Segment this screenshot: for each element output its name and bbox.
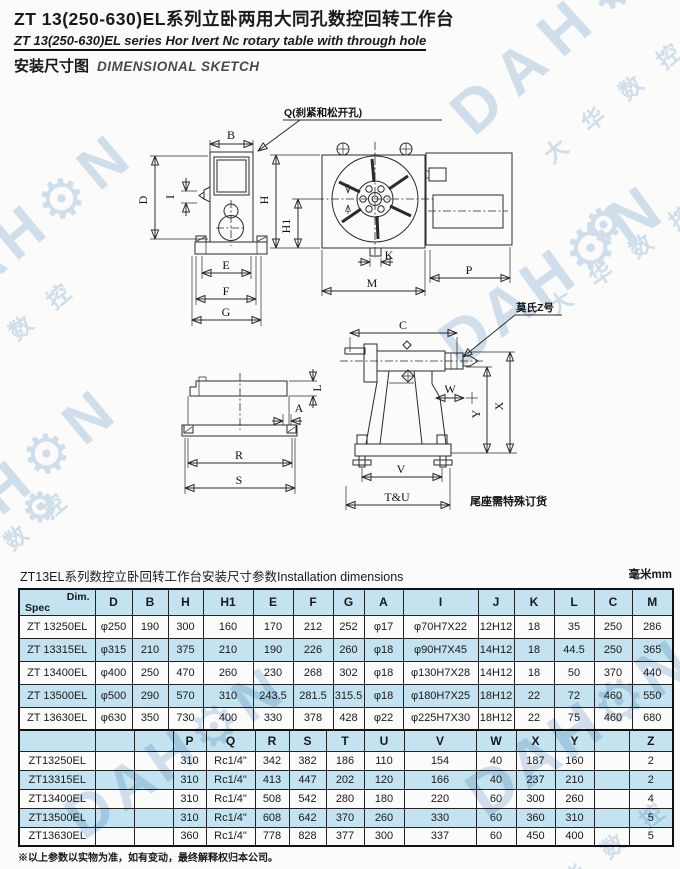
table-header-cell: X [516, 730, 555, 751]
footnote: ※以上参数以实物为准，如有变动，最终解释权归本公司。 [18, 849, 278, 864]
table-cell: 154 [404, 751, 476, 770]
table-cell: 226 [293, 638, 333, 661]
spec-cell: ZT13400EL [19, 789, 95, 808]
spec-cell: ZT 13500EL [19, 684, 95, 707]
table-cell [594, 751, 629, 770]
dim-label-tu: T&U [384, 490, 410, 504]
table-cell [594, 789, 629, 808]
table-cell: 428 [333, 707, 364, 730]
table-cell: Rc1/4" [206, 770, 255, 789]
table-cell: 350 [132, 707, 168, 730]
page-title-zh: ZT 13(250-630)EL系列立卧两用大同孔数控回转工作台 [14, 6, 454, 31]
table-cell: 186 [326, 751, 364, 770]
table-cell: 365 [632, 638, 673, 661]
table-cell: 370 [594, 661, 632, 684]
drawing-base-section: L A R S [182, 369, 324, 494]
table-cell: φ500 [95, 684, 132, 707]
table-cell: 608 [255, 808, 289, 827]
table-cell: φ70H7X22 [403, 615, 478, 638]
page-title-en: ZT 13(250-630)EL series Hor Ivert Nc rot… [14, 33, 426, 51]
spec-cell: ZT 13400EL [19, 661, 95, 684]
table-cell: φ18 [364, 661, 403, 684]
table-cell: 400 [203, 707, 253, 730]
table-cell: 260 [364, 808, 404, 827]
table-cell: φ17 [364, 615, 403, 638]
section-title-en: DIMENSIONAL SKETCH [97, 59, 260, 74]
table-cell: 180 [364, 789, 404, 808]
table-row: ZT 13500ELφ500290570310243.5281.5315.5φ1… [19, 684, 673, 707]
table-cell: 18H12 [478, 707, 514, 730]
table-header-cell: Q [206, 730, 255, 751]
table-cell: 378 [293, 707, 333, 730]
table-cell: 828 [289, 827, 326, 846]
table-cell: φ22 [364, 707, 403, 730]
table-cell [594, 808, 629, 827]
dim-label-l: L [310, 384, 324, 391]
table-cell: 460 [594, 707, 632, 730]
table-cell: 110 [364, 751, 404, 770]
table-cell: 260 [203, 661, 253, 684]
spec-cell: ZT13250EL [19, 751, 95, 770]
table-cell: 375 [168, 638, 203, 661]
table-cell: 310 [173, 789, 206, 808]
table-row: ZT 13630ELφ630350730400330378428φ22φ225H… [19, 707, 673, 730]
table-cell: φ225H7X30 [403, 707, 478, 730]
table-cell: φ18 [364, 684, 403, 707]
corner-dim-label: Dim. [67, 591, 90, 603]
table-header-cell: L [554, 589, 594, 615]
table-cell: 14H12 [478, 661, 514, 684]
table-cell: 260 [555, 789, 594, 808]
table-cell: 470 [168, 661, 203, 684]
table-cell: 413 [255, 770, 289, 789]
table-cell: 450 [516, 827, 555, 846]
table-cell: 280 [326, 789, 364, 808]
table-header-cell: D [95, 589, 132, 615]
table-cell: 22 [514, 684, 554, 707]
dim-label-f: F [223, 284, 230, 298]
table-cell: 187 [516, 751, 555, 770]
table-cell: 281.5 [293, 684, 333, 707]
table-header-cell: T [326, 730, 364, 751]
table-header-cell [95, 730, 134, 751]
table-header-cell: S [289, 730, 326, 751]
table-cell: 210 [203, 638, 253, 661]
table-cell: 5 [629, 808, 673, 827]
table-cell: 778 [255, 827, 289, 846]
table-cell: φ315 [95, 638, 132, 661]
table-cell: 310 [203, 684, 253, 707]
table-cell: 377 [326, 827, 364, 846]
table-cell: φ90H7X45 [403, 638, 478, 661]
dim-label-s: S [236, 473, 243, 487]
dim-label-r: R [235, 448, 243, 462]
table-cell: 75 [554, 707, 594, 730]
table-cell: φ180H7X25 [403, 684, 478, 707]
table-cell: 60 [476, 808, 516, 827]
table-cell: 220 [404, 789, 476, 808]
table-header-cell [19, 730, 95, 751]
spec-cell: ZT 13250EL [19, 615, 95, 638]
table-cell: 12H12 [478, 615, 514, 638]
installation-dimensions-table: Dim.SpecDBHH1EFGAIJKLCMZT 13250ELφ250190… [18, 588, 672, 847]
table-cell: 542 [289, 789, 326, 808]
table-cell: 260 [333, 638, 364, 661]
dim-label-b: B [227, 128, 235, 142]
dim-label-w: W [444, 382, 456, 396]
table-header-cell: Z [629, 730, 673, 751]
page-header: ZT 13(250-630)EL系列立卧两用大同孔数控回转工作台 ZT 13(2… [14, 6, 454, 76]
spec-cell: ZT 13315EL [19, 638, 95, 661]
table-cell [134, 770, 173, 789]
dim-label-y: Y [469, 409, 483, 418]
table-cell: 2 [629, 751, 673, 770]
table-cell: 120 [364, 770, 404, 789]
table-unit: 毫米mm [629, 566, 672, 585]
section-title: 安装尺寸图DIMENSIONAL SKETCH [14, 55, 454, 76]
table-cell: 44.5 [554, 638, 594, 661]
table-cell: 202 [326, 770, 364, 789]
table-row: ZT13315EL310Rc1/4"4134472021201664023721… [19, 770, 673, 789]
dim-label-c: C [399, 318, 407, 332]
dim-label-m: M [367, 276, 378, 290]
dim-label-h1: H1 [279, 219, 293, 234]
table-cell: 210 [132, 638, 168, 661]
table-header-cell: I [403, 589, 478, 615]
table-cell: φ250 [95, 615, 132, 638]
table-cell: Rc1/4" [206, 789, 255, 808]
table-cell [95, 770, 134, 789]
table-cell: 166 [404, 770, 476, 789]
table-cell: 508 [255, 789, 289, 808]
table-cell: 460 [594, 684, 632, 707]
table-header-cell: R [255, 730, 289, 751]
table-cell: 250 [594, 615, 632, 638]
table-cell: 5 [629, 827, 673, 846]
table-header-cell: Y [555, 730, 594, 751]
table-cell: 286 [632, 615, 673, 638]
table-header-cell: G [333, 589, 364, 615]
table-cell: 230 [253, 661, 293, 684]
table-cell: 370 [326, 808, 364, 827]
table-cell: 342 [255, 751, 289, 770]
table-cell: 382 [289, 751, 326, 770]
table-cell: 212 [293, 615, 333, 638]
table-cell [95, 827, 134, 846]
brake-hole-note: Q(刹紧和松开孔) [284, 106, 362, 119]
table-caption: ZT13EL系列数控立卧回转工作台安装尺寸参数Installation dime… [20, 566, 672, 585]
catalog-page: ZT 13(250-630)EL系列立卧两用大同孔数控回转工作台 ZT 13(2… [0, 0, 680, 869]
table-cell: 447 [289, 770, 326, 789]
drawing-front-view: K M P H H1 [257, 142, 512, 296]
spec-cell: ZT13500EL [19, 808, 95, 827]
table-cell [134, 827, 173, 846]
table-header-cell: H1 [203, 589, 253, 615]
dim-label-p: P [466, 263, 473, 277]
table-cell [95, 808, 134, 827]
table-cell: 170 [253, 615, 293, 638]
table-cell [134, 789, 173, 808]
table-title: ZT13EL系列数控立卧回转工作台安装尺寸参数Installation dime… [20, 566, 403, 585]
table-cell: 60 [476, 827, 516, 846]
table-cell: Rc1/4" [206, 808, 255, 827]
table-cell: 210 [555, 770, 594, 789]
table-row: ZT13500EL310Rc1/4"6086423702603306036031… [19, 808, 673, 827]
table-cell: 72 [554, 684, 594, 707]
table-cell: 300 [516, 789, 555, 808]
table-row: ZT13250EL310Rc1/4"3423821861101544018716… [19, 751, 673, 770]
table-header-cell: F [293, 589, 333, 615]
table-cell: 680 [632, 707, 673, 730]
table-corner-cell: Dim.Spec [19, 589, 95, 615]
table-cell: φ18 [364, 638, 403, 661]
table-cell: 250 [594, 638, 632, 661]
table-cell: 160 [203, 615, 253, 638]
dim-label-x: X [492, 401, 506, 410]
table-cell: 310 [173, 808, 206, 827]
table-cell: 14H12 [478, 638, 514, 661]
dim-label-k: K [385, 248, 394, 262]
drawing-side-view: Q(刹紧和松开孔) B D [136, 106, 442, 326]
spec-cell: ZT13630EL [19, 827, 95, 846]
table-cell: 18H12 [478, 684, 514, 707]
spec-cell: ZT 13630EL [19, 707, 95, 730]
table-header-cell: W [476, 730, 516, 751]
table-cell: 4 [629, 789, 673, 808]
table-cell: 400 [555, 827, 594, 846]
table-cell: 190 [253, 638, 293, 661]
table-row: ZT13630EL360Rc1/4"7788283773003376045040… [19, 827, 673, 846]
dim-label-g: G [222, 305, 231, 319]
table-cell: 35 [554, 615, 594, 638]
table-cell: 60 [476, 789, 516, 808]
drawing-tailstock: C 莫氏Z号 [340, 301, 562, 510]
table-header-cell: B [132, 589, 168, 615]
table-header-cell: U [364, 730, 404, 751]
table-cell: 250 [132, 661, 168, 684]
table-header-cell: K [514, 589, 554, 615]
table-cell: 190 [132, 615, 168, 638]
table-header-cell: E [253, 589, 293, 615]
table-cell: Rc1/4" [206, 751, 255, 770]
table-header-cell: A [364, 589, 403, 615]
table-cell: 50 [554, 661, 594, 684]
dim-label-i: I [163, 195, 177, 199]
table-header-cell: V [404, 730, 476, 751]
table-cell: 310 [173, 751, 206, 770]
dim-label-h: H [257, 195, 271, 204]
table-cell: 18 [514, 661, 554, 684]
table-cell: 310 [173, 770, 206, 789]
dimensional-sketch: Q(刹紧和松开孔) B D [0, 0, 680, 560]
dimensions-table-lower: PQRSTUVWXYZZT13250EL310Rc1/4"34238218611… [18, 729, 674, 847]
dimensions-table-upper: Dim.SpecDBHH1EFGAIJKLCMZT 13250ELφ250190… [18, 588, 674, 731]
table-header-cell: M [632, 589, 673, 615]
table-header-cell [134, 730, 173, 751]
table-cell [594, 770, 629, 789]
corner-spec-label: Spec [25, 602, 50, 614]
table-cell [95, 789, 134, 808]
table-cell: φ400 [95, 661, 132, 684]
table-cell: 268 [293, 661, 333, 684]
table-cell: 18 [514, 638, 554, 661]
table-cell: 337 [404, 827, 476, 846]
table-header-cell [594, 730, 629, 751]
table-row: ZT13400EL310Rc1/4"5085422801802206030026… [19, 789, 673, 808]
table-cell: 550 [632, 684, 673, 707]
table-cell: 300 [364, 827, 404, 846]
table-header-cell: P [173, 730, 206, 751]
table-cell: 2 [629, 770, 673, 789]
dim-label-v: V [397, 462, 406, 476]
table-header-cell: C [594, 589, 632, 615]
table-cell: 330 [253, 707, 293, 730]
tailstock-order-note: 尾座需特殊订货 [469, 494, 547, 508]
table-cell: Rc1/4" [206, 827, 255, 846]
table-cell: 243.5 [253, 684, 293, 707]
table-cell: 642 [289, 808, 326, 827]
table-cell: 252 [333, 615, 364, 638]
section-title-zh: 安装尺寸图 [14, 58, 89, 75]
table-header-cell: H [168, 589, 203, 615]
table-cell: 440 [632, 661, 673, 684]
table-row: ZT 13315ELφ315210375210190226260φ18φ90H7… [19, 638, 673, 661]
table-cell: 330 [404, 808, 476, 827]
spec-cell: ZT13315EL [19, 770, 95, 789]
table-row: ZT 13400ELφ400250470260230268302φ18φ130H… [19, 661, 673, 684]
dim-label-a: A [295, 401, 304, 415]
table-cell: 315.5 [333, 684, 364, 707]
table-cell: 310 [555, 808, 594, 827]
table-cell: 237 [516, 770, 555, 789]
table-cell: 160 [555, 751, 594, 770]
table-cell [95, 751, 134, 770]
table-cell: φ130H7X28 [403, 661, 478, 684]
table-cell: 360 [516, 808, 555, 827]
table-cell: 570 [168, 684, 203, 707]
table-cell [594, 827, 629, 846]
table-row: ZT 13250ELφ250190300160170212252φ17φ70H7… [19, 615, 673, 638]
dim-label-e: E [222, 258, 229, 272]
table-header-cell: J [478, 589, 514, 615]
table-cell: 360 [173, 827, 206, 846]
table-cell: 290 [132, 684, 168, 707]
table-cell: φ630 [95, 707, 132, 730]
table-cell: 22 [514, 707, 554, 730]
table-cell: 730 [168, 707, 203, 730]
dim-label-d: D [136, 195, 150, 204]
morse-taper-note: 莫氏Z号 [515, 301, 554, 314]
table-cell: 40 [476, 770, 516, 789]
table-cell: 300 [168, 615, 203, 638]
table-cell: 40 [476, 751, 516, 770]
table-cell: 302 [333, 661, 364, 684]
table-cell [134, 808, 173, 827]
table-cell [134, 751, 173, 770]
table-cell: 18 [514, 615, 554, 638]
